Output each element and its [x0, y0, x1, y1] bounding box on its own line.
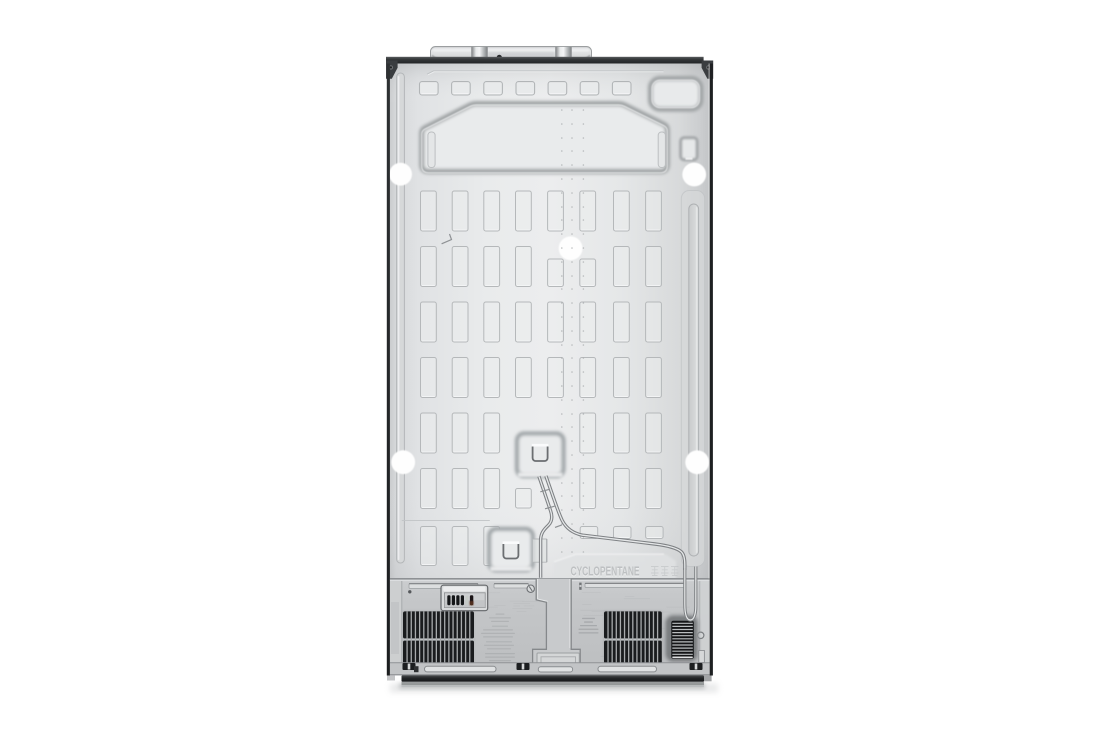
svg-text:CYCLOPENTANE: CYCLOPENTANE — [571, 564, 640, 579]
